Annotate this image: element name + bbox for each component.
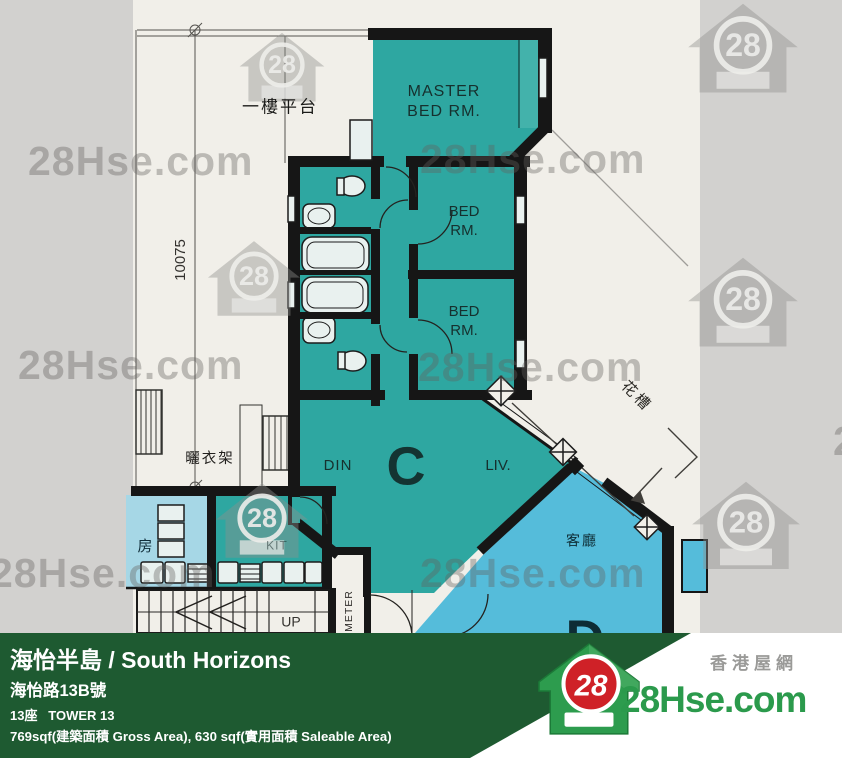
watermark-text: 28Hse.com <box>418 344 644 391</box>
master-bedroom-label: BED RM. <box>407 103 481 121</box>
drying-rack-label: 曬衣架 <box>185 452 235 468</box>
unit-c-label: C <box>387 437 426 496</box>
meter-label: METER <box>344 590 356 632</box>
area-label: 769sqf(建築面積 Gross Area), 630 sqf(實用面積 Sa… <box>10 726 392 745</box>
watermark-band-left <box>0 0 133 633</box>
28hse-logo: 28 香港屋網 28Hse.com <box>538 643 838 753</box>
up-label: UP <box>281 614 300 629</box>
site-name: 28Hse.com <box>620 679 806 721</box>
living-room-cn-label: 客廳 <box>566 533 598 548</box>
living-label: LIV. <box>485 458 510 475</box>
bedroom-1-label: BED <box>449 204 480 221</box>
watermark-text: 28Hse.com <box>420 136 646 183</box>
watermark-28: 28 <box>725 281 761 317</box>
master-bedroom-label: MASTER <box>408 83 481 101</box>
tower-label: 13座 TOWER 13 <box>10 705 115 724</box>
watermark-text: 28Hse.com <box>0 550 216 597</box>
watermark-text: 28Hse.com <box>420 550 646 597</box>
bedroom-1-label: RM. <box>450 223 478 240</box>
room-cn-label: 房 <box>137 539 152 556</box>
platform-label: 一樓平台 <box>242 99 318 118</box>
floorplan-page: 28 28 28 28 28 28 28Hse.com 28Hse.com 28… <box>0 0 842 758</box>
watermark-text: 28Hse.com <box>28 138 254 185</box>
estate-address: 海怡路13B號 <box>10 677 106 701</box>
bedroom-2-label: RM. <box>450 323 478 340</box>
logo-number: 28 <box>574 669 608 702</box>
watermark-28: 28 <box>725 27 761 63</box>
site-name-cn: 香港屋網 <box>710 649 798 674</box>
watermark-28: 28 <box>268 51 296 79</box>
watermark-text-clipped: 28Hse.com <box>833 418 842 465</box>
watermark-28: 28 <box>729 505 763 540</box>
watermark-28: 28 <box>239 261 269 291</box>
unit-d-bay-window <box>682 540 707 592</box>
watermark-28: 28 <box>247 503 277 533</box>
info-footer: 海怡半島 / South Horizons 海怡路13B號 13座 TOWER … <box>0 633 842 758</box>
kitchen-label: KIT <box>266 539 288 552</box>
dining-label: DIN <box>324 458 353 475</box>
bedroom-2-label: BED <box>449 304 480 321</box>
watermark-text: 28Hse.com <box>18 342 244 389</box>
dimension-label: 10075 <box>173 239 190 281</box>
estate-title: 海怡半島 / South Horizons <box>10 641 291 675</box>
